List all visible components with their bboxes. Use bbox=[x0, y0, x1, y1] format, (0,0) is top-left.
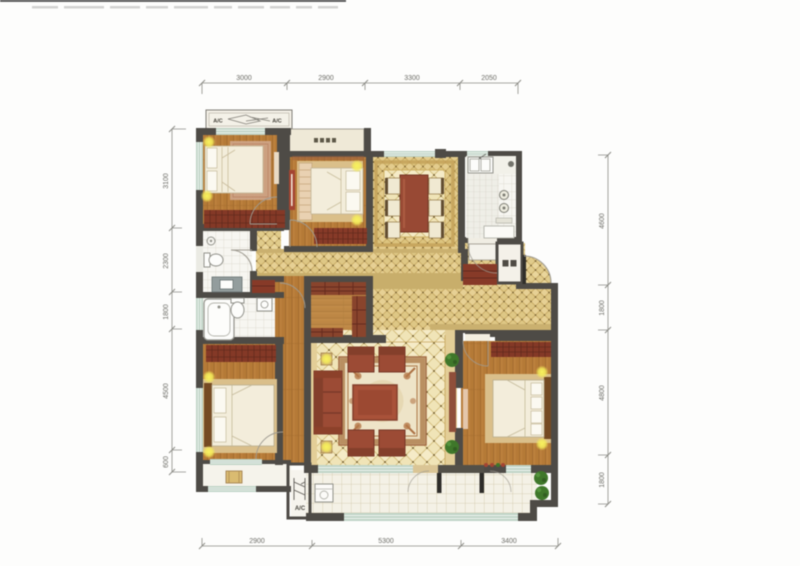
svg-text:1800: 1800 bbox=[599, 300, 606, 316]
svg-text:4800: 4800 bbox=[599, 385, 606, 401]
svg-text:2900: 2900 bbox=[249, 538, 265, 545]
svg-text:5300: 5300 bbox=[378, 538, 394, 545]
svg-text:4500: 4500 bbox=[163, 383, 170, 399]
svg-text:1800: 1800 bbox=[163, 304, 170, 320]
svg-text:1800: 1800 bbox=[599, 472, 606, 488]
svg-text:2900: 2900 bbox=[318, 75, 334, 82]
svg-text:3300: 3300 bbox=[404, 75, 420, 82]
svg-text:600: 600 bbox=[163, 456, 170, 468]
svg-text:3000: 3000 bbox=[236, 75, 252, 82]
svg-text:3400: 3400 bbox=[501, 538, 517, 545]
svg-text:2050: 2050 bbox=[481, 75, 497, 82]
svg-text:3100: 3100 bbox=[163, 173, 170, 189]
svg-text:2300: 2300 bbox=[163, 253, 170, 269]
svg-text:4600: 4600 bbox=[599, 213, 606, 229]
